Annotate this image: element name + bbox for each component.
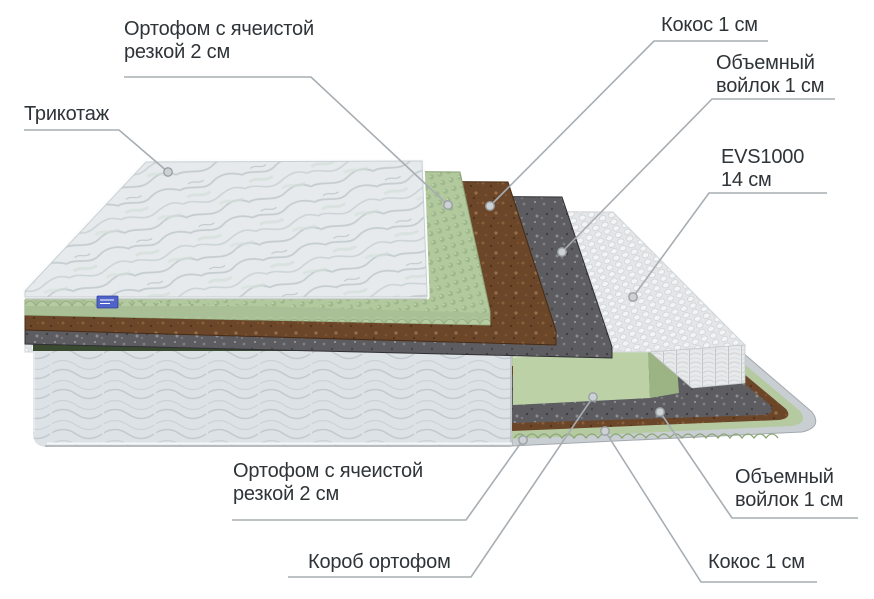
base-box: [33, 341, 512, 447]
dot-kokos-bottom: [601, 427, 609, 435]
label-evs: EVS1000 14 см: [721, 146, 804, 192]
dot-voilok-bottom: [656, 408, 664, 416]
dot-kokos-top: [486, 202, 494, 210]
dot-evs: [629, 293, 637, 301]
brand-tag: [97, 296, 118, 308]
mattress-layer-diagram: Ортофом с ячеистой резкой 2 см Трикотаж …: [0, 0, 874, 599]
dot-trikotazh: [164, 168, 172, 176]
dot-korob: [589, 393, 597, 401]
fabric-surface: [25, 161, 427, 297]
layer-fabric-top: [25, 161, 427, 299]
label-trikotazh: Трикотаж: [24, 103, 109, 126]
label-kokos-top: Кокос 1 см: [661, 14, 758, 37]
label-korob: Короб ортофом: [308, 551, 451, 574]
label-voilok-top: Объемный войлок 1 см: [716, 52, 824, 98]
base-box-front: [33, 351, 512, 447]
dot-ortofom-top: [444, 201, 452, 209]
label-voilok-bottom: Объемный войлок 1 см: [735, 466, 843, 512]
label-ortofom-bottom: Ортофом с ячеистой резкой 2 см: [233, 460, 423, 506]
label-ortofom-top: Ортофом с ячеистой резкой 2 см: [124, 18, 314, 64]
dot-ortofom-bottom: [519, 436, 527, 444]
dot-voilok-top: [558, 248, 566, 256]
label-kokos-bottom: Кокос 1 см: [708, 551, 805, 574]
